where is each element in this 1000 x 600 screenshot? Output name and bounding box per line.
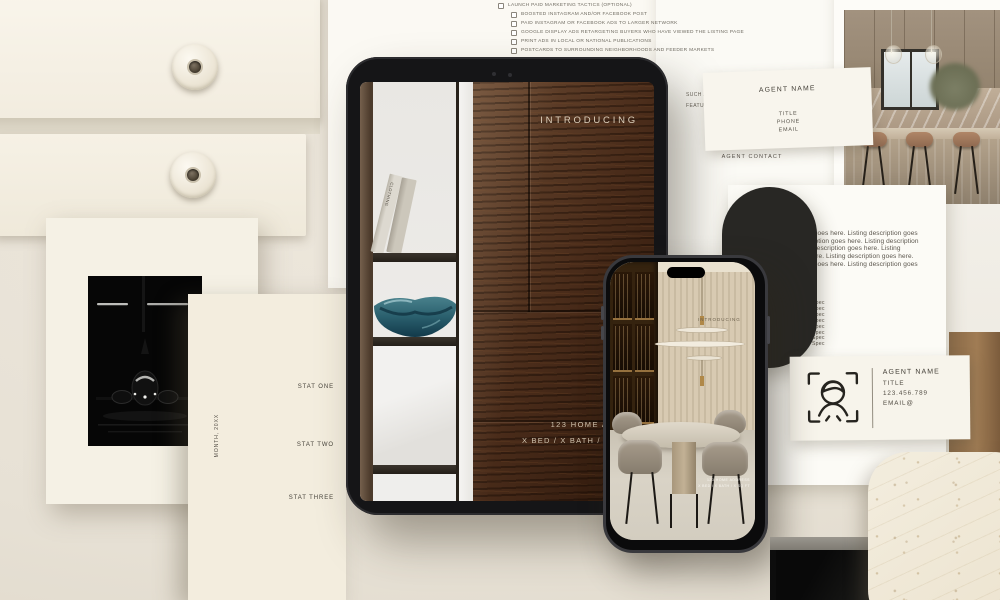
date-label: MONTH, 20XX <box>214 414 220 457</box>
drawer-knob-icon <box>172 44 218 90</box>
airplane-photo <box>88 276 202 446</box>
phone-screen: INTRODUCING 123 HOME ADDRESS X BED / X B… <box>610 262 755 540</box>
phone-specs-line: X BED / X BATH / X SQ FT <box>698 484 750 488</box>
table-pedestal <box>672 442 696 494</box>
checklist-row: GOOGLE DISPLAY ADS RETARGETING BUYERS WH… <box>511 28 848 37</box>
avatar-viewfinder-icon <box>806 370 860 424</box>
stat-one-label: STAT ONE <box>298 384 334 390</box>
shelf-board <box>373 465 456 474</box>
checklist-label: POSTCARDS TO SURROUNDING NEIGHBORHOODS A… <box>521 48 714 53</box>
table-leg <box>696 494 698 528</box>
teal-glass-bowl <box>370 288 460 340</box>
shelf-board <box>373 337 456 346</box>
knob-hole <box>189 61 201 73</box>
drawer-panel-top <box>0 0 320 120</box>
stat-three-label: STAT THREE <box>289 495 334 501</box>
checklist-row: PAID INSTAGRAM OR FACEBOOK ADS TO LARGER… <box>511 19 848 28</box>
checklist-label: PRINT ADS IN LOCAL OR NATIONAL PUBLICATI… <box>521 39 652 44</box>
book-spine-label: CLOTHING <box>384 182 395 207</box>
checklist-row: BOOSTED INSTAGRAM AND/OR FACEBOOK POST <box>511 10 848 19</box>
stat-two-label: STAT TWO <box>297 442 334 448</box>
dining-chair <box>618 440 662 474</box>
checklist-row: PRINT ADS IN LOCAL OR NATIONAL PUBLICATI… <box>511 37 848 46</box>
phone-headline: INTRODUCING <box>698 317 741 322</box>
phone-address-line: 123 HOME ADDRESS <box>698 478 750 482</box>
drawer-knob-icon <box>170 152 216 198</box>
agent-name: AGENT NAME <box>883 368 940 375</box>
power-button <box>767 316 770 344</box>
table-leg <box>670 494 672 528</box>
cabinet-seam <box>528 82 530 312</box>
kitchen-plant <box>930 63 980 110</box>
shelf-photo: CLOTHING <box>360 82 473 501</box>
travertine-swatch <box>868 452 1000 600</box>
checklist-label: LAUNCH PAID MARKETING TACTICS (OPTIONAL) <box>508 3 632 8</box>
checklist-label: PAID INSTAGRAM OR FACEBOOK ADS TO LARGER… <box>521 21 678 26</box>
checkbox-icon <box>511 21 517 27</box>
checklist-label: GOOGLE DISPLAY ADS RETARGETING BUYERS WH… <box>521 30 744 35</box>
agent-title: TITLE <box>883 378 940 389</box>
ipad-headline: INTRODUCING <box>540 115 638 126</box>
volume-button <box>601 306 604 320</box>
appliance-top-band <box>770 537 876 550</box>
checkbox-icon <box>511 30 517 36</box>
mockup-collage: SUCH AS VIRT FEATURES AN AGENT CONTACT L… <box>0 0 1000 600</box>
bar-stool <box>953 132 980 147</box>
pendant-light-icon <box>885 45 902 64</box>
airplane-illustration <box>88 276 202 446</box>
card-divider <box>872 368 874 428</box>
business-card-name: AGENT NAME <box>703 83 871 96</box>
appliance-photo <box>770 537 876 600</box>
checkbox-icon <box>511 48 517 54</box>
shelf-board <box>373 253 456 262</box>
drawer-gap-shadow <box>0 118 320 134</box>
checkbox-icon <box>511 39 517 45</box>
checkbox-icon <box>511 12 517 18</box>
dynamic-island <box>667 267 705 278</box>
camera-icon <box>508 73 512 77</box>
window-mullion <box>910 52 912 107</box>
knob-hole <box>187 169 199 181</box>
shelf-lower-cubby <box>373 346 456 465</box>
checklist-row: LAUNCH PAID MARKETING TACTICS (OPTIONAL) <box>498 1 848 10</box>
business-card-details: TITLE PHONE EMAIL <box>704 107 873 137</box>
agent-contact-heading: AGENT CONTACT <box>656 154 848 160</box>
wall-strip <box>459 82 473 501</box>
appliance-body <box>776 550 876 600</box>
business-card: AGENT NAME TITLE PHONE EMAIL <box>703 67 874 151</box>
spec-line: Spec <box>812 342 825 348</box>
dining-chair <box>702 442 748 476</box>
checklist-row: POSTCARDS TO SURROUNDING NEIGHBORHOODS A… <box>511 46 848 55</box>
agent-card: AGENT NAME TITLE 123.456.789 EMAIL@ <box>790 355 971 441</box>
cabinet-shelf-cell <box>613 272 632 320</box>
volume-button <box>601 326 604 340</box>
checklist-label: BOOSTED INSTAGRAM AND/OR FACEBOOK POST <box>521 12 647 17</box>
phone-address-block: 123 HOME ADDRESS X BED / X BATH / X SQ F… <box>698 478 750 488</box>
phone-device: INTRODUCING 123 HOME ADDRESS X BED / X B… <box>603 255 768 553</box>
checkbox-icon <box>498 3 504 9</box>
agent-card-text: AGENT NAME TITLE 123.456.789 EMAIL@ <box>883 368 941 409</box>
cabinet-shelf-cell <box>613 324 632 372</box>
agent-phone: 123.456.789 <box>883 389 940 400</box>
chandelier-icon <box>650 272 750 397</box>
agent-email: EMAIL@ <box>883 399 940 410</box>
bar-stool <box>906 132 933 147</box>
camera-icon <box>492 72 496 76</box>
stats-page: STAT ONE STAT TWO STAT THREE MONTH, 20XX <box>188 294 346 600</box>
